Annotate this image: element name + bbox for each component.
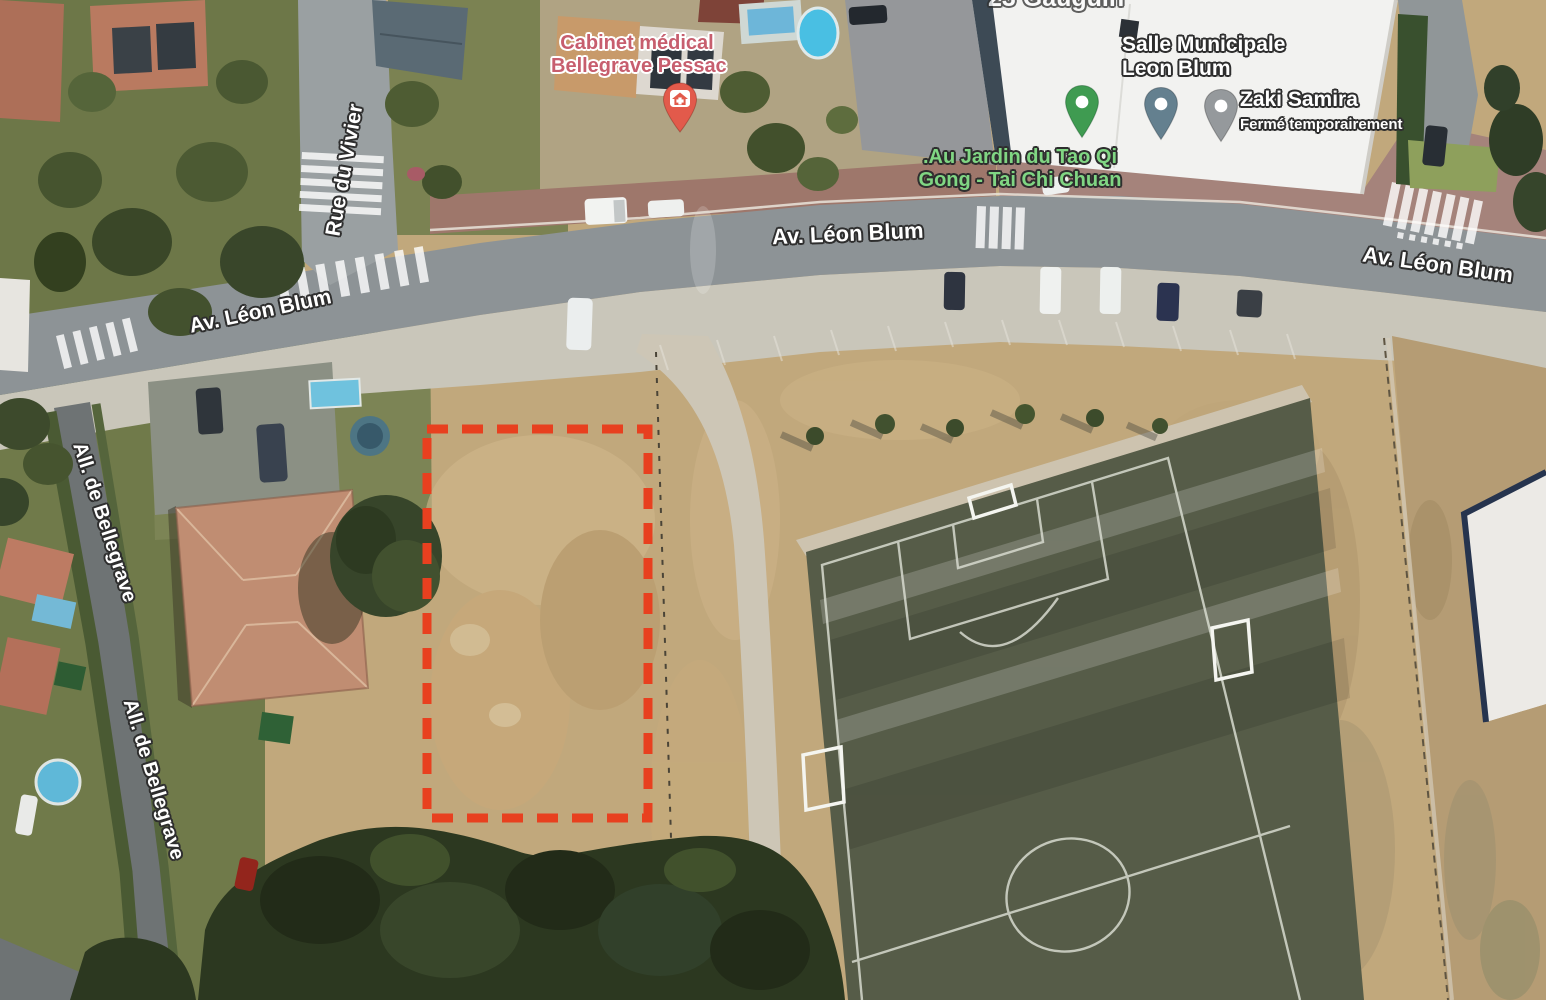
partial-address-label: 23 Gauguin <box>988 0 1124 13</box>
medical-poi-pin[interactable] <box>660 82 700 139</box>
partial-address-text: 23 Gauguin <box>988 0 1124 12</box>
salle-municipale-pin[interactable] <box>1143 86 1179 147</box>
zaki-samira-pin[interactable] <box>1203 88 1239 149</box>
medical-poi-label-line2: Bellegrave Pessac <box>551 55 723 78</box>
tai-chi-poi-label-line1: .Au Jardin du Tao Qi <box>912 146 1128 169</box>
zaki-samira-label[interactable]: Zaki Samira <box>1240 88 1358 112</box>
medical-poi-label[interactable]: Cabinet médical Bellegrave Pessac <box>551 32 723 78</box>
salle-municipale-label-line1: Salle Municipale <box>1122 33 1285 57</box>
salle-municipale-label[interactable]: Salle Municipale Leon Blum <box>1122 33 1285 81</box>
tai-chi-poi-pin[interactable] <box>1064 84 1100 145</box>
tai-chi-poi-label[interactable]: .Au Jardin du Tao Qi Gong - Tai Chi Chua… <box>912 146 1128 192</box>
zaki-samira-name: Zaki Samira <box>1240 88 1358 111</box>
zaki-samira-status-text: Fermé temporairement <box>1240 116 1403 133</box>
satellite-map-canvas[interactable] <box>0 0 1546 1000</box>
zaki-samira-status: Fermé temporairement <box>1240 116 1403 133</box>
tai-chi-poi-label-line2: Gong - Tai Chi Chuan <box>912 169 1128 192</box>
road-label-text: Av. Léon Blum <box>772 218 925 250</box>
salle-municipale-label-line2: Leon Blum <box>1122 57 1285 81</box>
medical-poi-label-line1: Cabinet médical <box>551 32 723 55</box>
